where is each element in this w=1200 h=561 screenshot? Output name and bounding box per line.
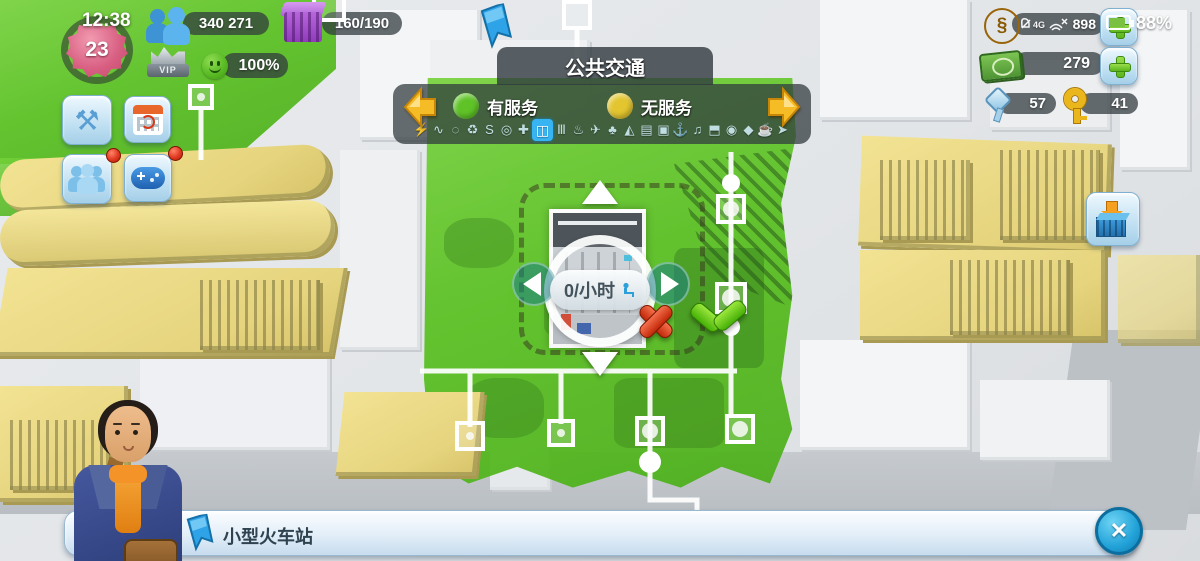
platinum-key-icon [982,90,1016,122]
population-icon [146,7,190,45]
simoleon-icon: § [984,8,1020,44]
advisor-face [105,406,151,462]
service-icon-entertainment[interactable]: ♫ [689,119,706,141]
cancel-placement-button[interactable] [633,298,679,344]
move-down-button[interactable] [582,352,618,376]
legend-dot-no-service [607,93,633,119]
service-icon-bus[interactable]: ▣ [655,119,672,141]
service-icon-parks[interactable]: ♣ [604,119,621,141]
minigames-notification-dot [168,146,183,161]
legend-label-service: 有服务 [487,94,538,119]
simcash-icon [979,50,1024,82]
service-panel: 公共交通 有服务 无服务 ⚡∿◌♻S◎✚◫Ⅲ♨✈♣◭▤▣⚓♫⬒◉◆☕➤ [393,47,811,144]
service-icon-sewage[interactable]: ◌ [447,119,464,141]
storage-icon [280,2,326,44]
service-icon-waste[interactable]: ♻ [464,119,481,141]
battery-icon [1106,15,1131,30]
service-icon-fire[interactable]: ♨ [570,119,587,141]
panel-title: 公共交通 [497,47,713,85]
service-icon-airport[interactable]: ✈ [587,119,604,141]
confirm-placement-button[interactable] [688,295,746,345]
right-arrow-icon [661,272,679,296]
left-arrow-icon [523,272,541,296]
service-icon-seaport[interactable]: ⚓ [672,119,689,141]
crown-icon [151,47,185,65]
store-building-button[interactable] [1086,192,1140,246]
close-button[interactable]: ✕ [1095,507,1143,555]
messenger-bag [124,539,178,561]
building-name: 小型火车站 [223,523,313,549]
panel-next-button[interactable] [767,87,801,127]
train-conductor-advisor [68,372,188,561]
service-icon-education[interactable]: Ⅲ [553,119,570,141]
level-value: 23 [85,38,108,62]
service-icon-camera[interactable]: ◉ [723,119,740,141]
panel-prev-button[interactable] [403,87,437,127]
game-viewport[interactable]: 0/小时 23 12:38 340 271 160/190 VIP 100% ⚒ [0,0,1200,561]
service-icon-regions[interactable]: ▤ [638,119,655,141]
service-icon-health[interactable]: ✚ [515,119,532,141]
legend-dot-service [453,93,479,119]
simoleon-symbol: § [997,15,1008,37]
service-icons-row: ⚡∿◌♻S◎✚◫Ⅲ♨✈♣◭▤▣⚓♫⬒◉◆☕➤ [413,118,791,142]
game-clock: 12:38 [82,10,131,32]
vip-label: VIP [147,64,189,77]
train-station-flag-icon [184,513,215,554]
service-icon-gem[interactable]: ◆ [740,119,757,141]
move-left-button[interactable] [512,262,556,306]
social-notification-dot [106,148,121,163]
happiness-icon [202,53,228,79]
service-icon-cable-car[interactable]: ⬒ [706,119,723,141]
building-banner: 小型火车站 ✕ [64,510,1137,556]
service-icon-transport[interactable]: ◫ [532,119,553,141]
conductor-cap [94,378,164,410]
storage-box-icon [1096,201,1130,237]
close-icon: ✕ [1110,518,1128,544]
golden-key-icon [1060,88,1098,124]
service-icon-roads[interactable]: S [481,119,498,141]
service-icon-beach[interactable]: ◭ [621,119,638,141]
move-up-button[interactable] [582,180,618,204]
vip-badge[interactable]: VIP [147,47,189,79]
passenger-icon [620,282,636,298]
service-icon-police[interactable]: ◎ [498,119,515,141]
battery-percent: 88% [1136,13,1172,34]
legend-label-no-service: 无服务 [641,94,692,119]
service-rate-value: 0/小时 [564,277,615,303]
